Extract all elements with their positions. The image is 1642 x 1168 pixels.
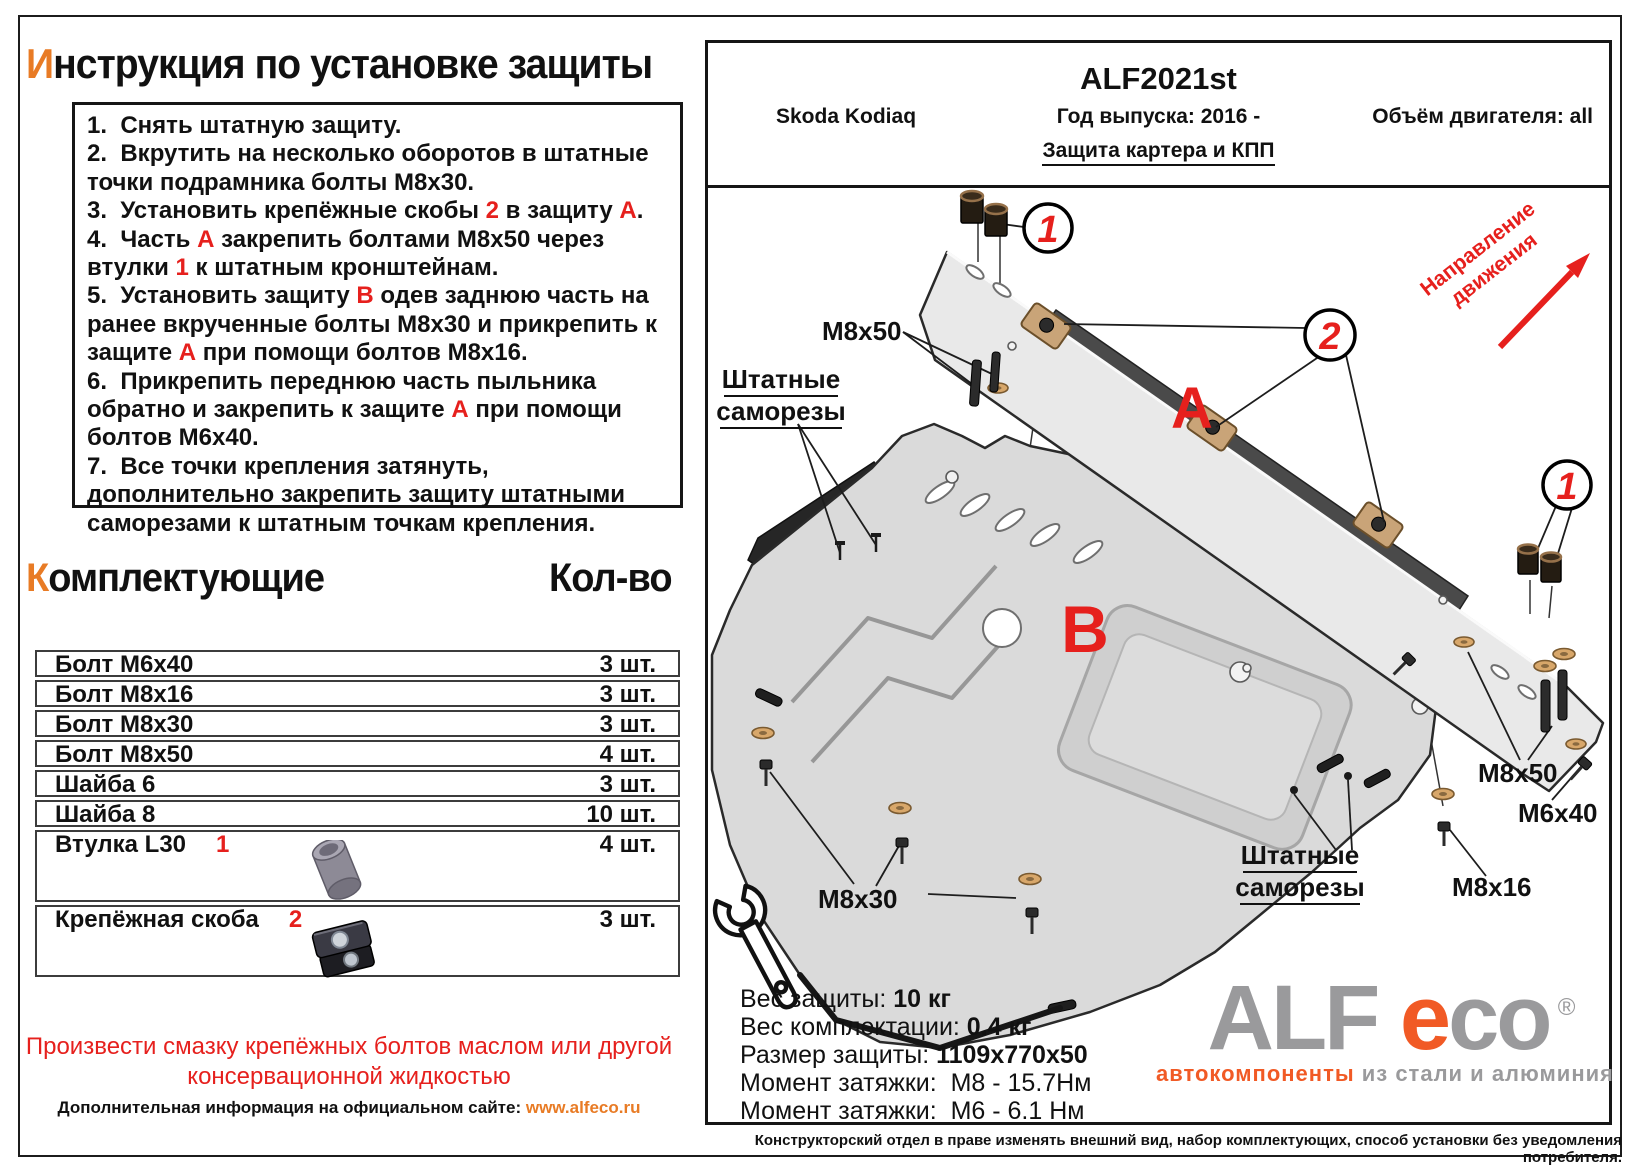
instruction-item: 1. Снять штатную защиту.	[87, 112, 670, 140]
component-qty: 3 шт.	[600, 772, 656, 797]
component-qty: 4 шт.	[600, 742, 656, 767]
protection-type: Защита картера и КПП	[708, 139, 1609, 163]
components-title: Комплектующие	[26, 556, 324, 601]
table-row: Крепёжная скоба2 3 шт.	[35, 905, 680, 977]
instruction-item: 7. Все точки крепления затянуть, дополни…	[87, 453, 670, 538]
label-m8x16: M8x16	[1452, 872, 1532, 902]
svg-text:Штатные: Штатные	[1241, 840, 1359, 870]
svg-text:саморезы: саморезы	[716, 396, 845, 426]
part-b-label: B	[1061, 592, 1109, 666]
callout-2: 2	[1305, 310, 1355, 360]
spec-row: Размер защиты: 1109х770х50	[740, 1041, 1091, 1069]
svg-text:саморезы: саморезы	[1235, 872, 1364, 902]
spec-row: Момент затяжки: М8 - 15.7Нм	[740, 1069, 1091, 1097]
disclaimer: Конструкторский отдел в праве изменять в…	[700, 1132, 1622, 1166]
engine-label: Объём двигателя: all	[1372, 105, 1593, 129]
bushing-image	[305, 840, 369, 902]
part-a-label: А	[1171, 376, 1213, 441]
label-m8x30: M8x30	[818, 884, 898, 914]
instruction-item: 6. Прикрепить переднюю часть пыльника об…	[87, 368, 670, 453]
spec-row: Вес защиты: 10 кг	[740, 985, 1091, 1013]
page-title-initial: И	[26, 40, 53, 87]
instruction-item: 3. Установить крепёжные скобы 2 в защиту…	[87, 197, 670, 225]
table-row: Болт М8х504 шт.	[35, 740, 680, 767]
label-m6x40: M6x40	[1518, 798, 1598, 828]
component-qty: 3 шт.	[600, 652, 656, 677]
registered-trademark-icon: ®	[1558, 965, 1576, 1051]
product-code: ALF2021st	[708, 61, 1609, 97]
svg-text:1: 1	[1556, 466, 1577, 508]
components-header: Комплектующие Кол-во	[26, 556, 678, 601]
label-m8x50-left: M8x50	[822, 316, 902, 346]
component-qty: 3 шт.	[600, 712, 656, 737]
component-name: Болт М8х50	[55, 742, 193, 767]
instruction-list: 1. Снять штатную защиту.2. Вкрутить на н…	[72, 102, 683, 508]
table-row: Шайба 63 шт.	[35, 770, 680, 797]
component-name: Втулка L301	[55, 832, 229, 857]
specs-block: Вес защиты: 10 кгВес комплектации: 0.4 к…	[740, 985, 1091, 1125]
component-qty: 3 шт.	[600, 907, 656, 932]
alfeco-logo: ALF eco ® автокомпоненты из стали и алюм…	[1156, 975, 1601, 1087]
lubrication-warning: Произвести смазку крепёжных болтов масло…	[25, 1032, 673, 1092]
component-name: Болт М8х30	[55, 712, 193, 737]
instruction-item: 5. Установить защиту В одев заднюю часть…	[87, 282, 670, 367]
spec-row: Момент затяжки: М6 - 6.1 Нм	[740, 1097, 1091, 1125]
website-link[interactable]: www.alfeco.ru	[526, 1098, 641, 1117]
component-qty: 3 шт.	[600, 682, 656, 707]
product-panel: ALF2021st Skoda Kodiaq Год выпуска: 2016…	[705, 40, 1612, 1125]
callout-1-top: 1	[1024, 204, 1072, 252]
instruction-item: 2. Вкрутить на несколько оборотов в штат…	[87, 140, 670, 197]
component-name: Шайба 8	[55, 802, 155, 827]
svg-text:2: 2	[1318, 316, 1340, 358]
instruction-item: 4. Часть А закрепить болтами М8х50 через…	[87, 226, 670, 283]
product-header: ALF2021st Skoda Kodiaq Год выпуска: 2016…	[708, 43, 1609, 188]
clamp-image	[305, 915, 383, 981]
components-table: Болт М6х403 шт.Болт М8х163 шт.Болт М8х30…	[35, 650, 680, 977]
callout-1-right: 1	[1543, 461, 1591, 509]
svg-text:Штатные: Штатные	[722, 364, 840, 394]
table-row: Втулка L301 4 шт.	[35, 830, 680, 902]
label-factory-screws-right: Штатные саморезы	[1235, 840, 1364, 904]
component-name: Шайба 6	[55, 772, 155, 797]
table-row: Болт М8х303 шт.	[35, 710, 680, 737]
component-name: Крепёжная скоба2	[55, 907, 302, 932]
page-title: Инструкция по установке защиты	[26, 40, 652, 88]
label-m8x50-right: M8x50	[1478, 758, 1558, 788]
direction-of-travel: Направление движения	[1416, 197, 1590, 347]
quantity-header: Кол-во	[549, 556, 672, 601]
spec-row: Вес комплектации: 0.4 кг	[740, 1013, 1091, 1041]
table-row: Шайба 810 шт.	[35, 800, 680, 827]
component-qty: 4 шт.	[600, 832, 656, 857]
component-qty: 10 шт.	[586, 802, 656, 827]
component-marker: 2	[289, 906, 302, 933]
table-row: Болт М6х403 шт.	[35, 650, 680, 677]
label-factory-screws-left: Штатные саморезы	[716, 364, 845, 428]
component-marker: 1	[216, 831, 229, 858]
component-name: Болт М8х16	[55, 682, 193, 707]
table-row: Болт М8х163 шт.	[35, 680, 680, 707]
alfeco-logo-wordmark: ALF eco ®	[1208, 975, 1550, 1061]
svg-text:1: 1	[1037, 209, 1058, 251]
component-name: Болт М6х40	[55, 652, 193, 677]
website-info: Дополнительная информация на официальном…	[25, 1098, 673, 1118]
